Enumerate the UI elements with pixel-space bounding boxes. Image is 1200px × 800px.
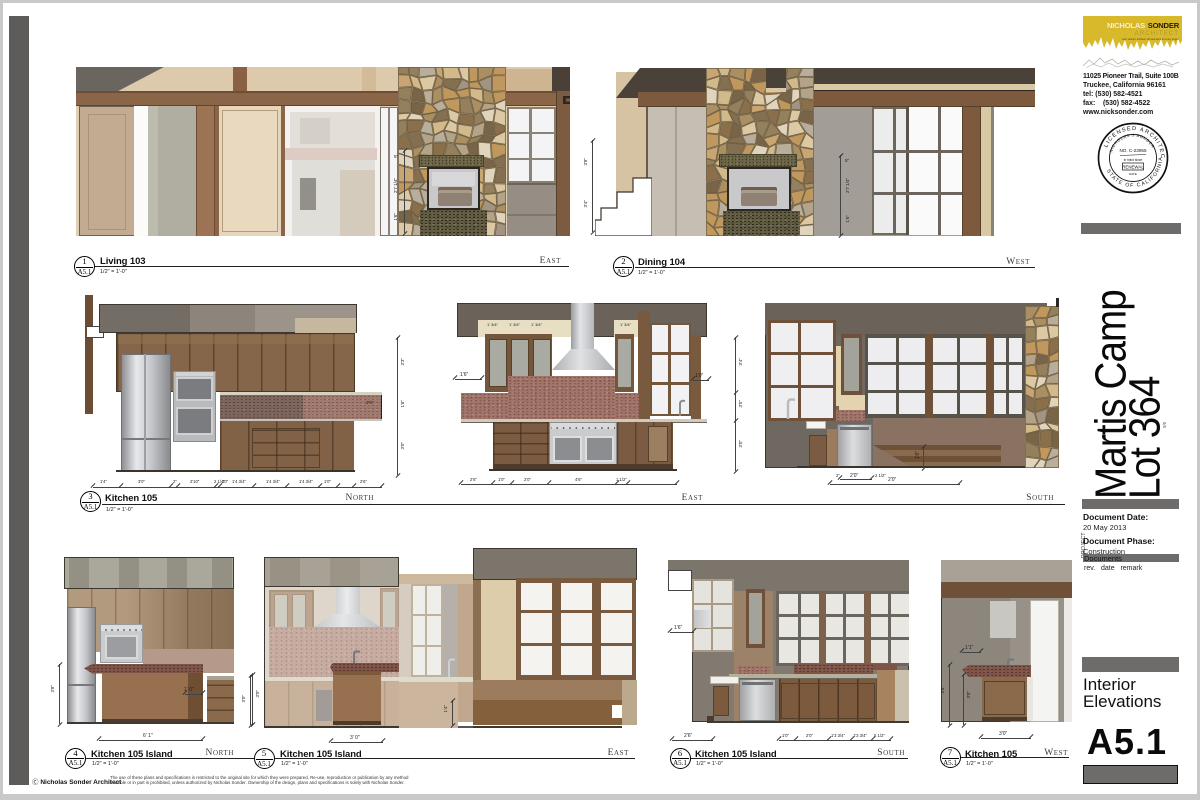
svg-text:NICHOLAS: NICHOLAS — [1107, 21, 1145, 30]
svg-text:in mind since: in mind since — [1124, 158, 1143, 162]
svg-text:ARCHITECT: ARCHITECT — [1135, 30, 1179, 37]
svg-text:SONDER: SONDER — [1148, 21, 1180, 30]
svg-text:LICENSED ARCHITECT: LICENSED ARCHITECT — [1097, 122, 1165, 159]
svg-text:tech. airtech. architect. tbtt: tech. airtech. architect. tbtt and twice… — [1122, 38, 1179, 41]
svg-text:NO. C-23955: NO. C-23955 — [1119, 148, 1147, 153]
svg-text:DATE: DATE — [1129, 172, 1137, 176]
svg-text:RENEWAL: RENEWAL — [1122, 165, 1144, 170]
